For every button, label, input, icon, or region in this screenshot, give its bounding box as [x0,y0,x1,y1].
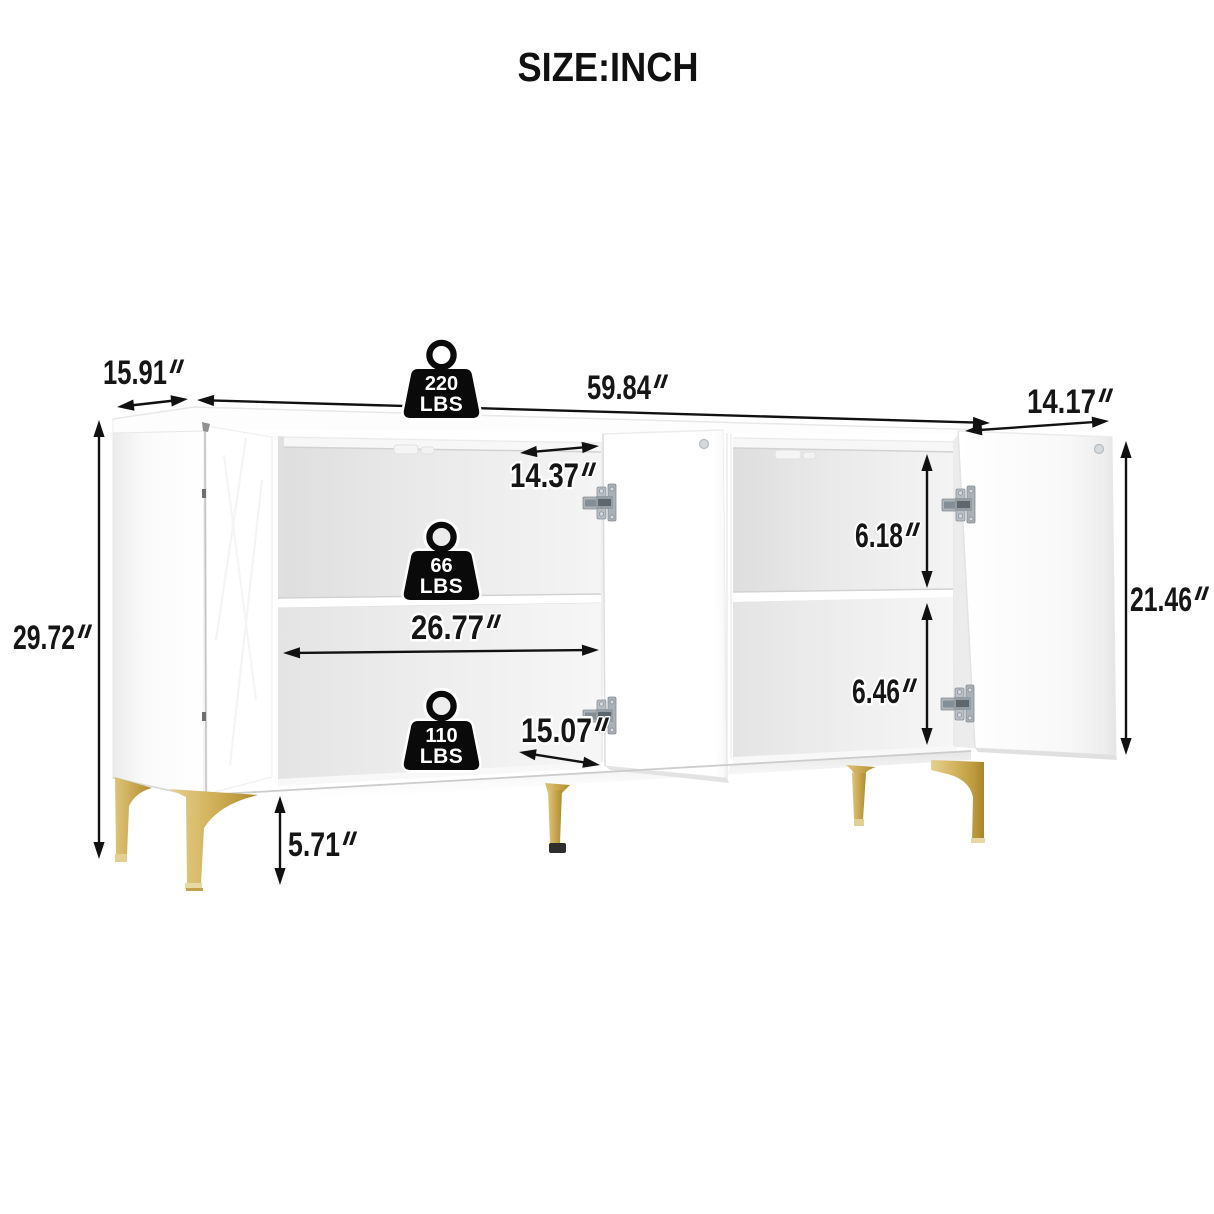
svg-text:6.18: 6.18 [855,517,903,555]
svg-text:LBS: LBS [420,393,464,416]
svg-text:21.46: 21.46 [1130,581,1192,619]
svg-text:LBS: LBS [420,575,464,598]
svg-text:15.07: 15.07 [521,712,592,750]
svg-text:5.71: 5.71 [288,826,340,864]
svg-text:26.77: 26.77 [411,609,484,647]
svg-text:59.84: 59.84 [587,369,651,407]
svg-text:6.46: 6.46 [852,673,900,711]
svg-text:29.72: 29.72 [13,619,75,657]
svg-text:15.91: 15.91 [103,354,167,392]
svg-text:14.37: 14.37 [510,457,579,495]
svg-text:SIZE:INCH: SIZE:INCH [518,44,699,90]
svg-text:110: 110 [425,725,457,747]
svg-text:220: 220 [425,373,458,395]
svg-text:66: 66 [430,555,452,577]
svg-text:LBS: LBS [420,745,464,768]
svg-text:14.17: 14.17 [1027,383,1096,421]
